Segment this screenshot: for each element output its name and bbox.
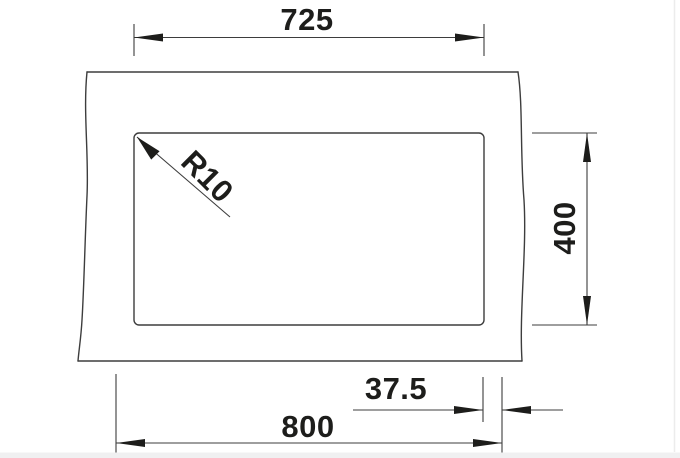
arrowhead-inward-left-icon: [502, 406, 531, 414]
arrowhead-inward-right-icon: [454, 406, 483, 414]
countertop-outline: [78, 72, 525, 361]
dim-right-400: 400: [532, 133, 597, 325]
arrowhead-left-icon: [116, 439, 145, 447]
arrowhead-radius-icon: [137, 137, 160, 160]
arrowhead-right-icon: [455, 34, 484, 42]
dim-radius-r10: R10: [137, 137, 240, 217]
countertop-break-line-left: [78, 72, 87, 361]
arrowhead-left-icon: [134, 34, 163, 42]
dim-label-right-height: 400: [547, 201, 582, 254]
countertop-break-line-right: [518, 72, 525, 361]
dim-top-725: 725: [134, 2, 484, 56]
page-bottom-strip: [0, 453, 680, 458]
technical-drawing: 725 400 R10 37.5: [0, 0, 680, 458]
dim-label-bottom-offset: 37.5: [365, 371, 427, 406]
dim-bottom-37-5: 37.5: [353, 371, 563, 454]
arrowhead-down-icon: [583, 296, 591, 325]
dim-label-corner-radius: R10: [174, 144, 240, 210]
arrowhead-up-icon: [583, 133, 591, 162]
drawing-canvas: 725 400 R10 37.5: [0, 0, 680, 458]
dim-bottom-800: 800: [116, 374, 502, 454]
dim-label-bottom-width: 800: [281, 409, 334, 444]
dim-label-top-width: 725: [280, 2, 333, 37]
arrowhead-right-icon: [473, 439, 502, 447]
